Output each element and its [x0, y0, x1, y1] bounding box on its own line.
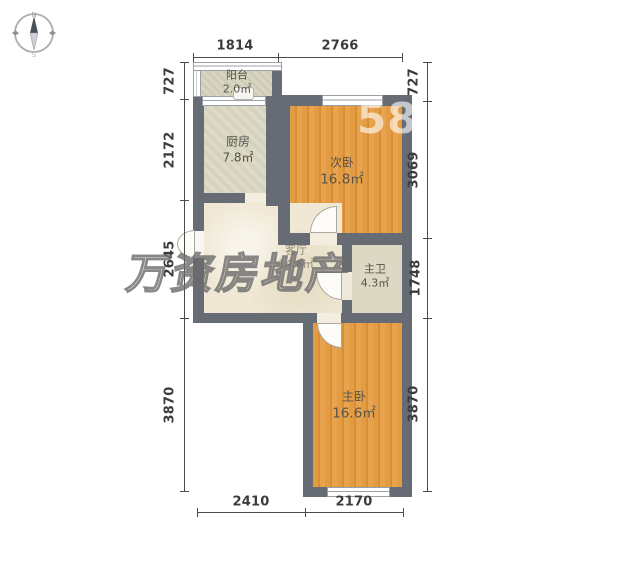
dim-tick	[180, 318, 189, 319]
wall	[278, 106, 290, 245]
dim-right-1: 727	[407, 68, 422, 96]
dim-tick	[278, 53, 279, 62]
dim-right-2: 3069	[407, 152, 422, 189]
master-bedroom-label: 主卧 16.6㎡	[332, 389, 376, 422]
agency-watermark: 万资房地产	[123, 240, 359, 301]
wall	[193, 193, 245, 203]
dim-right-4: 3870	[407, 386, 422, 423]
dimension-line-right	[427, 62, 428, 492]
second-bedroom-label: 次卧 16.8㎡	[320, 155, 364, 188]
floorplan-canvas: N S 阳台 2.0㎡ 厨房 7.8㎡	[0, 0, 621, 562]
dim-left-4: 3870	[163, 387, 178, 424]
dim-tick	[402, 53, 403, 62]
dim-bottom-2: 2170	[336, 495, 373, 510]
dim-left-2: 2172	[163, 132, 178, 169]
dim-tick	[180, 99, 189, 100]
dim-right-3: 1748	[409, 260, 424, 297]
balcony-left-window	[193, 70, 201, 97]
dim-tick	[423, 491, 432, 492]
dim-tick	[423, 238, 432, 239]
master-bathroom-label: 主卫 4.3㎡	[361, 263, 390, 292]
dim-tick	[197, 508, 198, 517]
balcony-label: 阳台 2.0㎡	[223, 69, 252, 98]
dim-tick	[193, 53, 194, 62]
compass-icon: N S	[9, 7, 59, 59]
dim-tick	[423, 101, 432, 102]
wall	[193, 313, 314, 323]
dim-tick	[423, 62, 432, 63]
wall	[303, 313, 313, 497]
dimension-line-bottom	[197, 512, 403, 513]
dim-left-1: 727	[163, 67, 178, 95]
dim-tick	[180, 62, 189, 63]
dim-tick	[180, 200, 189, 201]
dim-tick	[403, 508, 404, 517]
dim-tick	[423, 318, 432, 319]
dim-tick	[305, 508, 306, 517]
compass-south-label: S	[32, 51, 37, 59]
dim-tick	[180, 491, 189, 492]
dim-top-1: 1814	[217, 39, 254, 54]
dim-top-2: 2766	[322, 39, 359, 54]
master-bedroom-door-opening	[317, 313, 341, 323]
site-watermark: 58	[357, 94, 417, 143]
kitchen-door-opening	[245, 193, 266, 203]
dimension-line-top	[193, 57, 402, 58]
dim-bottom-1: 2410	[233, 495, 270, 510]
kitchen-label: 厨房 7.8㎡	[222, 134, 253, 165]
